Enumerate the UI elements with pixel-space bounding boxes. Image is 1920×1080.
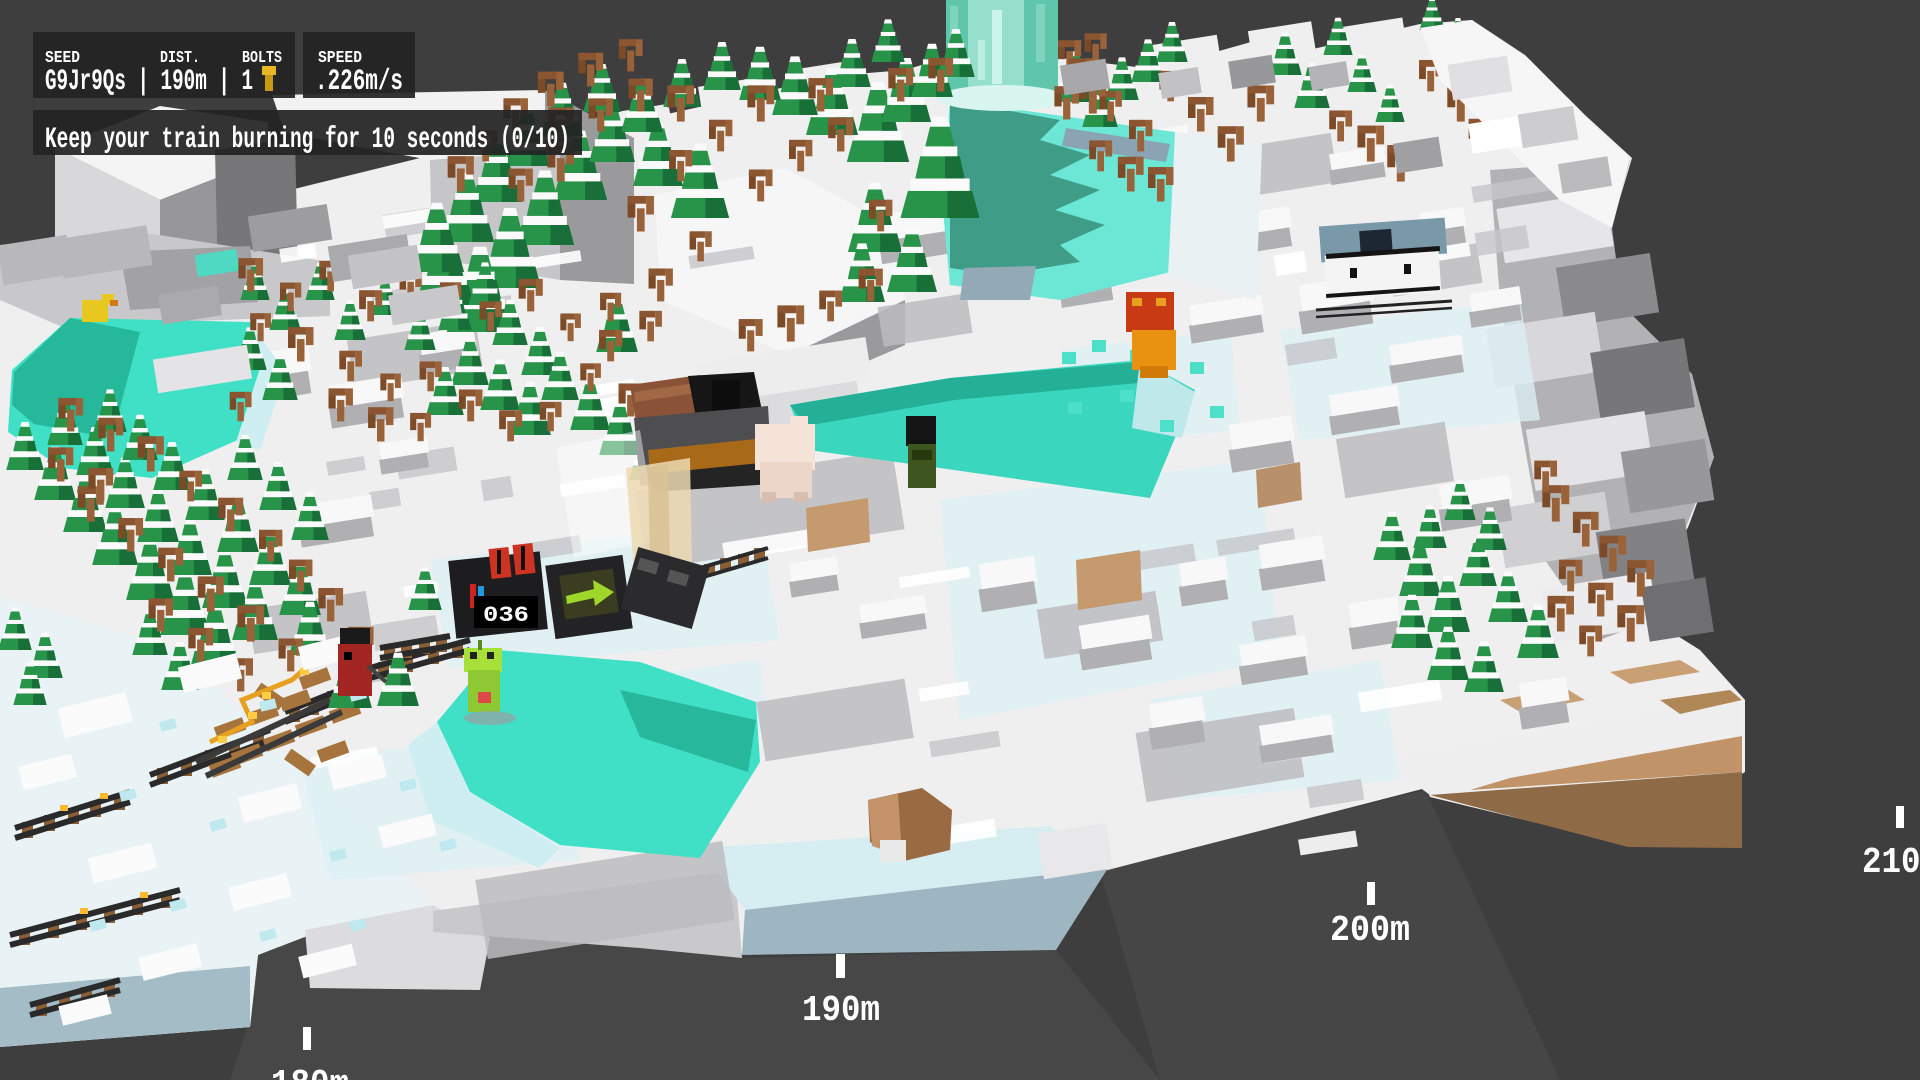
svg-text:200m: 200m	[1330, 910, 1410, 951]
svg-text:G9Jr9Qs | 190m | 1: G9Jr9Qs | 190m | 1	[45, 65, 253, 99]
svg-text:.226m/s: .226m/s	[315, 65, 403, 99]
svg-text:036: 036	[483, 603, 529, 628]
svg-text:Keep your train burning for 10: Keep your train burning for 10 seconds (…	[45, 123, 570, 157]
svg-text:180m: 180m	[271, 1064, 349, 1080]
svg-text:190m: 190m	[802, 990, 880, 1031]
svg-text:210m: 210m	[1862, 842, 1920, 883]
